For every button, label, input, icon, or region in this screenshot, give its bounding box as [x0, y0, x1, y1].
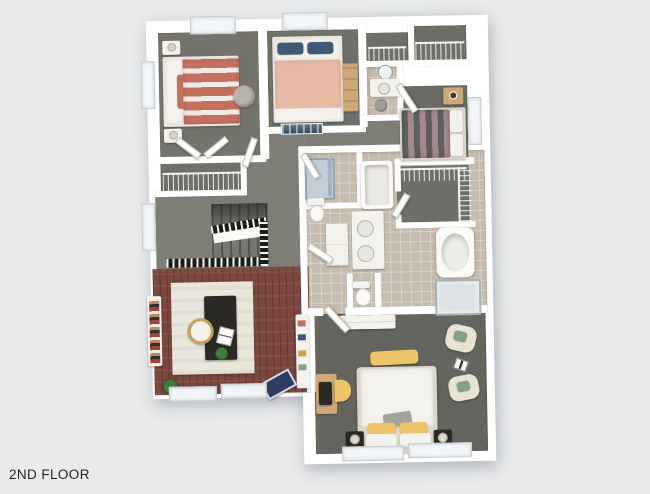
closet-wire-shelf	[458, 167, 472, 221]
wall	[307, 308, 323, 316]
bed-pillow	[450, 110, 463, 132]
wall-art	[281, 123, 323, 135]
shelf-decor	[298, 350, 306, 356]
window	[141, 61, 156, 109]
computer-monitor	[319, 382, 332, 405]
stair-railing	[260, 221, 269, 266]
closet-wire-shelf	[368, 46, 406, 63]
window	[467, 97, 482, 145]
bathtub-basin	[365, 165, 390, 205]
dresser	[343, 63, 359, 111]
wall	[408, 22, 415, 64]
shower	[435, 279, 482, 316]
bed-pillow	[450, 134, 463, 156]
window	[169, 386, 217, 402]
bookshelf-books	[149, 299, 160, 363]
window	[190, 16, 236, 35]
floorplan	[0, 0, 650, 494]
yellow-pillow	[368, 423, 396, 435]
window	[282, 12, 328, 31]
shelf-decor	[298, 320, 306, 326]
bed-bench	[370, 349, 419, 366]
wall	[360, 114, 402, 121]
window	[408, 442, 472, 458]
shelf-decor	[298, 334, 306, 340]
window	[342, 445, 404, 461]
shelf-decor	[298, 364, 306, 370]
bed-blanket-fold	[275, 108, 341, 121]
shower-glass	[327, 158, 332, 196]
navy-pillow	[277, 42, 303, 54]
navy-pillow	[307, 42, 333, 54]
bed-blanket-coral	[182, 58, 239, 125]
closet-wire-shelf	[399, 167, 467, 181]
yellow-pillow	[400, 422, 428, 434]
floor-label: 2ND FLOOR	[9, 467, 90, 482]
bed-blanket-striped	[402, 109, 451, 158]
closet-wire-shelf	[415, 41, 464, 62]
closet-wire-shelf	[163, 171, 243, 191]
window	[141, 203, 156, 251]
window	[221, 383, 267, 399]
